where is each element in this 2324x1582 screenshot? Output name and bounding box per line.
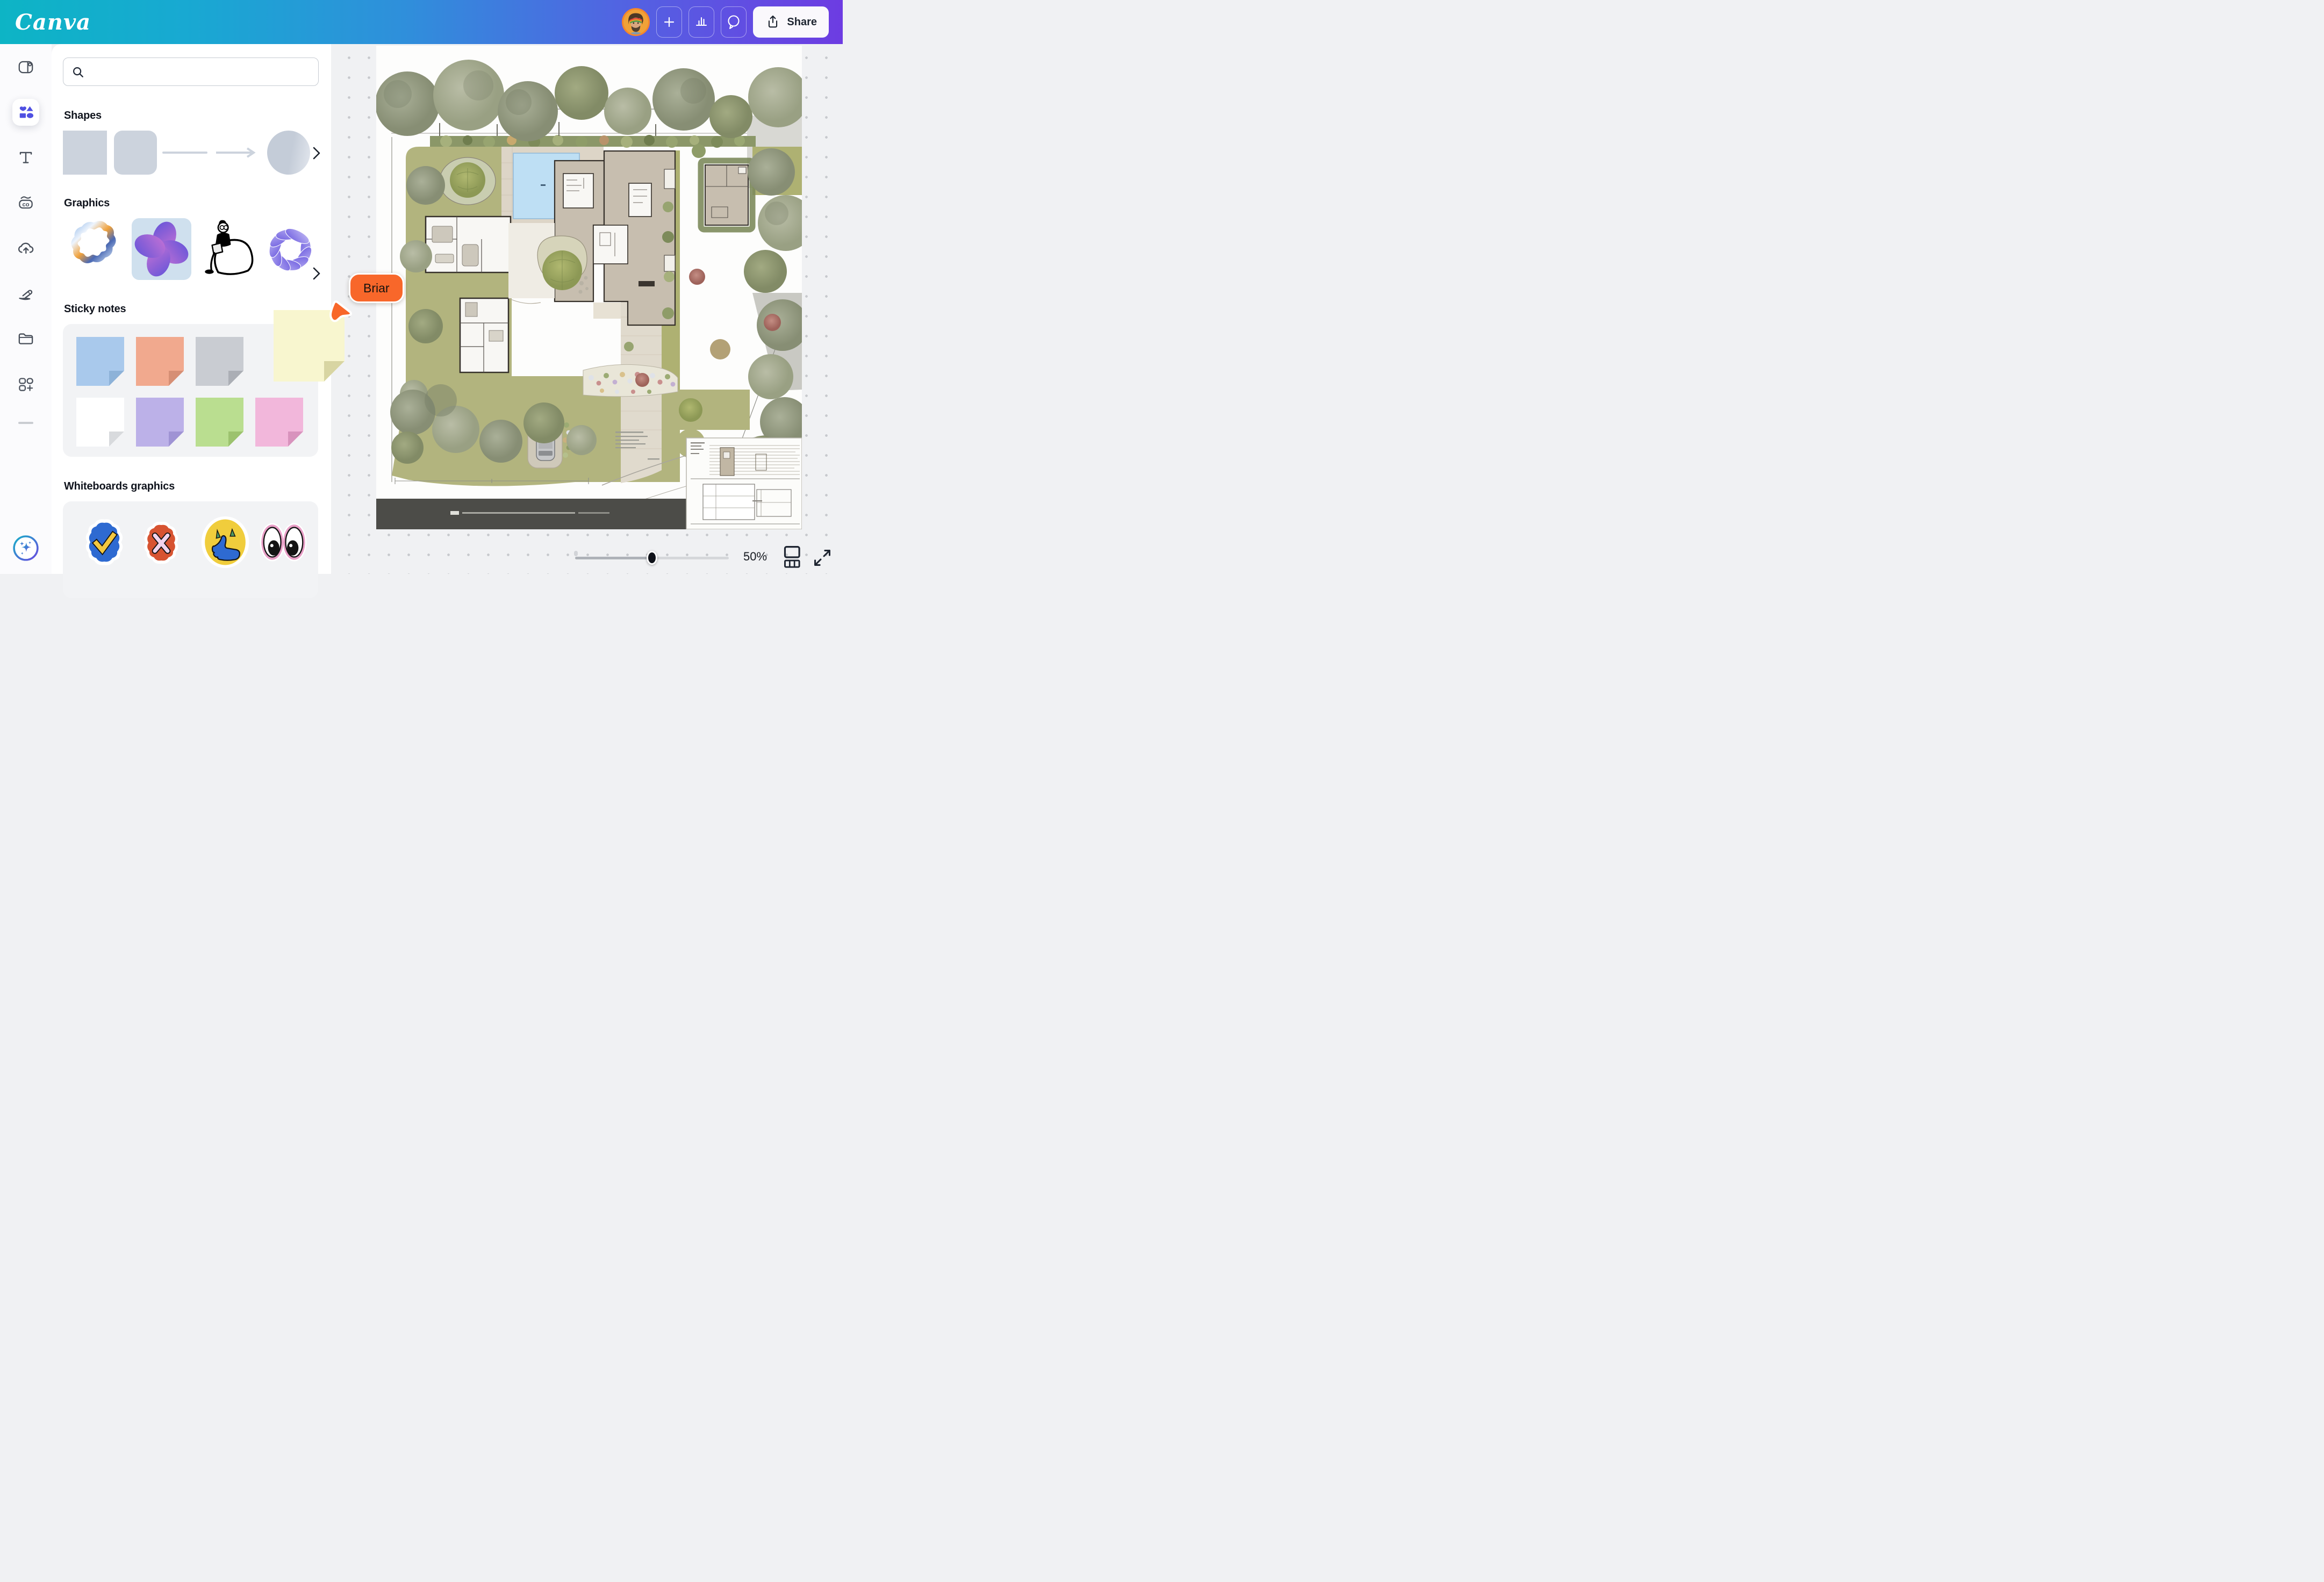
pen-icon xyxy=(16,283,36,303)
elements-panel: Shapes Graphics xyxy=(52,44,331,574)
sticky-note-white[interactable] xyxy=(76,398,124,447)
fullscreen-button[interactable] xyxy=(810,546,834,571)
sidebar-item-canva-ai[interactable] xyxy=(12,535,39,562)
insights-button[interactable] xyxy=(688,6,714,38)
section-title-sticky-notes: Sticky notes xyxy=(64,303,126,315)
zoom-slider-thumb[interactable] xyxy=(647,551,657,565)
zoom-min-marker xyxy=(574,551,578,556)
magic-sparkle-icon xyxy=(12,533,39,563)
cloud-upload-icon xyxy=(16,238,36,258)
comment-icon xyxy=(725,13,743,31)
bar-chart-icon xyxy=(692,13,711,31)
section-title-shapes: Shapes xyxy=(64,110,102,122)
shape-line[interactable] xyxy=(162,152,207,154)
avatar-photo xyxy=(623,10,648,34)
zoom-level-label[interactable]: 50% xyxy=(743,550,767,564)
graphic-person-beanbag[interactable] xyxy=(200,218,261,281)
sidebar-item-templates[interactable] xyxy=(12,54,39,81)
shape-circle[interactable] xyxy=(267,131,310,175)
sticky-note-pink[interactable] xyxy=(255,398,303,447)
shapes-more-chevron-icon[interactable] xyxy=(311,145,322,161)
sidebar-item-elements[interactable] xyxy=(12,99,39,126)
search-box[interactable] xyxy=(63,57,319,86)
collaborator-name: Briar xyxy=(363,281,390,296)
search-icon xyxy=(71,65,85,79)
elements-icon xyxy=(18,104,34,120)
zoom-slider-fill xyxy=(575,557,652,559)
shape-rounded-square[interactable] xyxy=(114,131,157,175)
brand-icon: co xyxy=(16,193,35,212)
grid-view-button[interactable] xyxy=(780,544,805,572)
purple-torus-graphic xyxy=(264,218,318,281)
person-on-beanbag-graphic xyxy=(200,218,261,281)
canva-logo[interactable]: Canva xyxy=(15,10,91,35)
grid-view-icon xyxy=(780,544,805,571)
chrome-blob-graphic xyxy=(63,218,124,281)
add-design-button[interactable] xyxy=(656,6,682,38)
sidebar-item-projects[interactable] xyxy=(12,325,39,352)
graphic-purple-flower[interactable] xyxy=(131,218,192,281)
sidebar-item-uploads[interactable] xyxy=(12,235,39,262)
top-bar: Canva xyxy=(0,0,843,44)
graphics-more-chevron-icon[interactable] xyxy=(311,265,322,282)
apps-grid-icon xyxy=(16,374,36,394)
sidebar-item-apps[interactable] xyxy=(12,371,39,398)
text-icon xyxy=(17,148,35,167)
shape-square[interactable] xyxy=(63,131,107,175)
collaborator-name-badge: Briar xyxy=(349,273,404,303)
sticky-note-gray[interactable] xyxy=(196,337,243,386)
rail-divider xyxy=(18,422,33,424)
canva-editor: Canva xyxy=(0,0,843,574)
plus-icon xyxy=(661,13,678,31)
avatar[interactable] xyxy=(622,8,650,36)
site-plan-page[interactable] xyxy=(376,46,802,529)
purple-flower-graphic xyxy=(131,218,192,281)
shape-arrow-line[interactable] xyxy=(215,144,259,161)
topbar-actions: Share xyxy=(622,6,829,38)
search-input[interactable] xyxy=(90,67,311,77)
templates-icon xyxy=(17,58,35,76)
site-plan-image xyxy=(376,46,802,529)
sticker-thumbs-up[interactable] xyxy=(199,515,251,572)
share-upload-icon xyxy=(765,14,781,30)
sidebar-item-text[interactable] xyxy=(12,144,39,171)
sticker-eyes[interactable] xyxy=(259,519,308,568)
sticky-note-purple[interactable] xyxy=(136,398,184,447)
x-badge-graphic xyxy=(138,519,185,566)
share-label: Share xyxy=(787,16,817,28)
fullscreen-icon xyxy=(810,546,834,570)
sidebar-item-draw[interactable] xyxy=(12,279,39,306)
thumbs-up-graphic xyxy=(199,515,251,569)
sticker-check-badge[interactable] xyxy=(78,516,130,571)
graphic-chrome-blob[interactable] xyxy=(63,218,124,281)
sticky-notes-row-2 xyxy=(76,398,303,447)
googly-eyes-graphic xyxy=(259,519,308,565)
sidebar-rail: co xyxy=(0,44,52,574)
svg-text:co: co xyxy=(23,202,30,208)
folder-icon xyxy=(16,328,36,349)
check-badge-graphic xyxy=(78,516,130,568)
comments-button[interactable] xyxy=(721,6,747,38)
sticky-note-green[interactable] xyxy=(196,398,243,447)
whiteboard-canvas[interactable] xyxy=(331,44,843,574)
section-title-graphics: Graphics xyxy=(64,197,110,210)
sticker-x-badge[interactable] xyxy=(138,519,185,569)
sticky-note-blue[interactable] xyxy=(76,337,124,386)
share-button[interactable]: Share xyxy=(753,6,829,38)
sticky-note-salmon[interactable] xyxy=(136,337,184,386)
section-title-whiteboards-graphics: Whiteboards graphics xyxy=(64,480,175,493)
sticky-notes-row-1 xyxy=(76,337,243,386)
sidebar-item-brand[interactable]: co xyxy=(12,189,39,216)
